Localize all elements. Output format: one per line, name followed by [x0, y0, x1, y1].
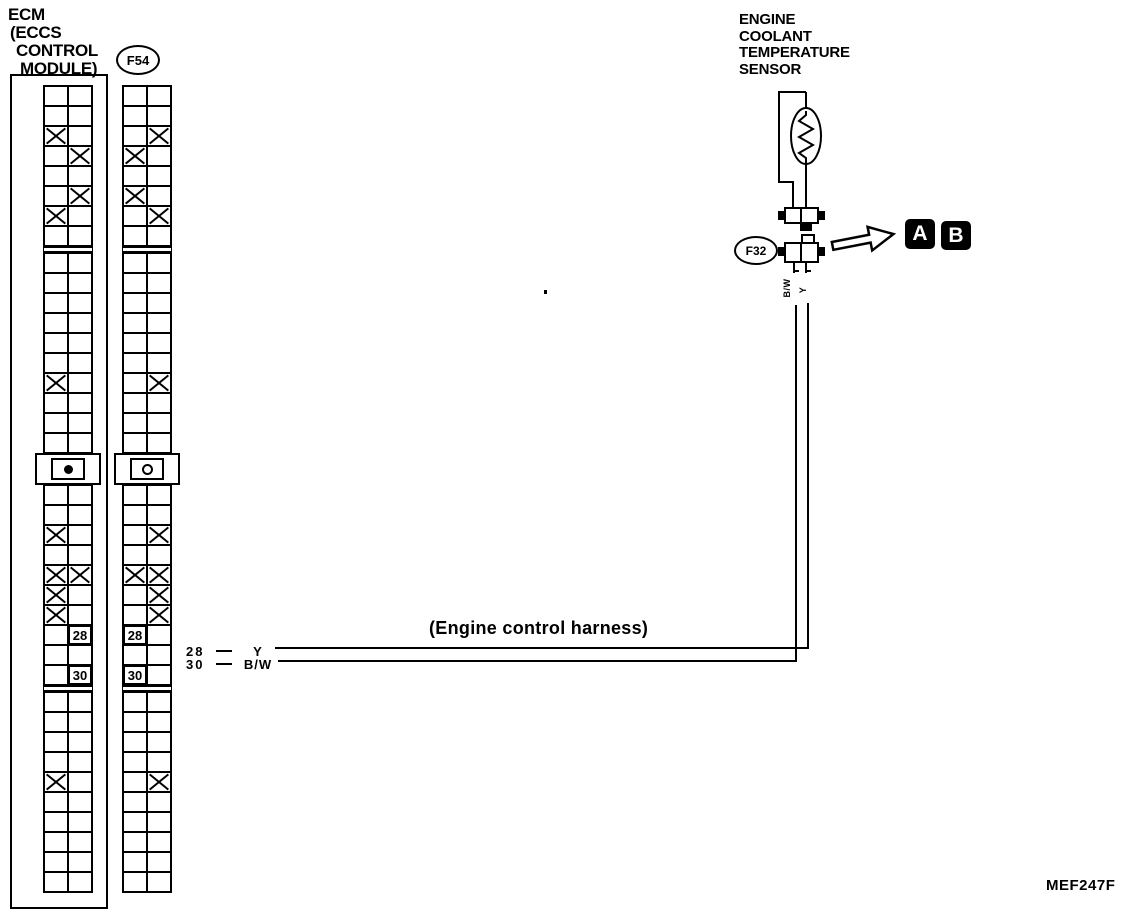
- wire-y: [275, 303, 808, 648]
- wire-dash: [216, 663, 232, 665]
- wire-bw: [278, 305, 796, 661]
- scan-speck: [544, 290, 547, 294]
- figure-code: MEF247F: [1046, 877, 1115, 894]
- wiring-diagram-page: ECM (ECCS CONTROL MODULE) F54 2830 2830 …: [0, 0, 1136, 912]
- wire-pin-number: 30: [186, 657, 214, 672]
- wire-color-code: B/W: [236, 657, 280, 672]
- wire-label-30-bw: 30 B/W: [186, 657, 280, 671]
- wire-dash: [216, 650, 232, 652]
- harness-note: (Engine control harness): [429, 618, 648, 639]
- harness-wires: [0, 0, 1136, 912]
